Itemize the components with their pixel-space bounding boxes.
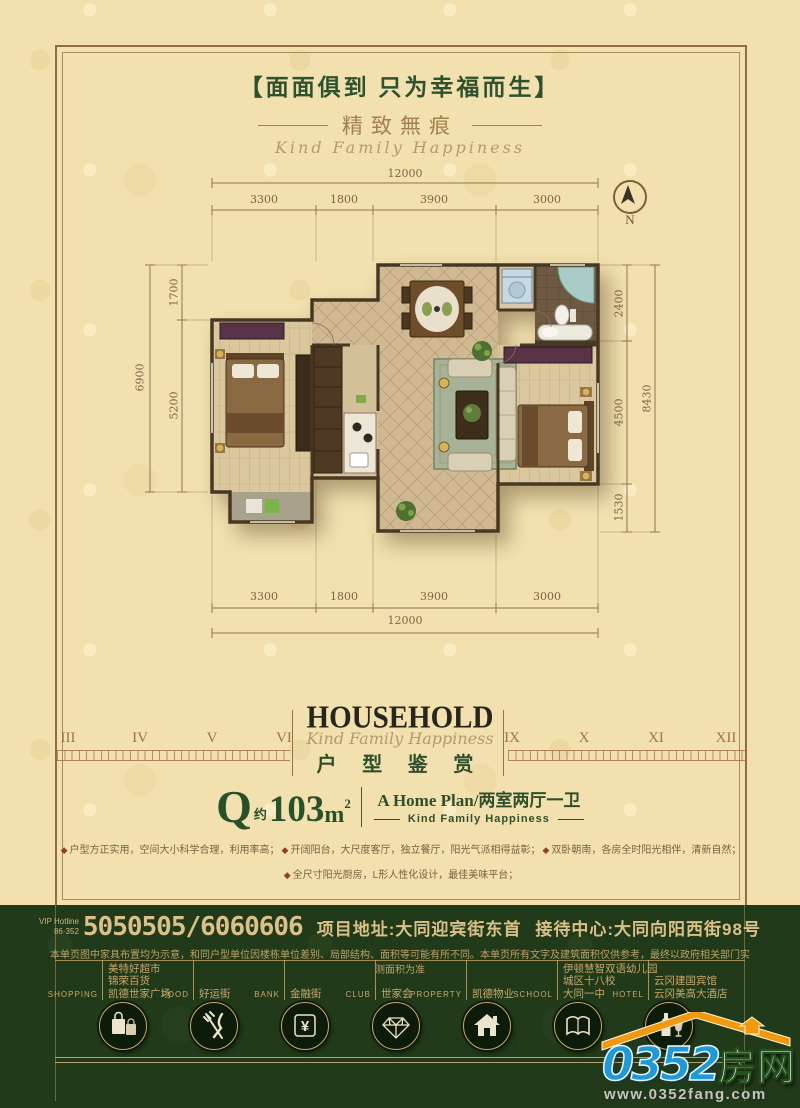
amenity-category: CLUB	[299, 990, 371, 999]
connector-line	[193, 960, 194, 1000]
wardrobe	[220, 323, 284, 339]
dim-top-total: 12000	[375, 167, 435, 180]
unit-approx: 约	[254, 804, 267, 823]
balcony-cushion-green	[265, 499, 279, 513]
site-logo: 0352房网 www.0352fang.com	[598, 1012, 800, 1108]
amenity-category: HOTEL	[572, 990, 644, 999]
ruler-numeral: XII	[711, 730, 741, 747]
logo-url: www.0352fang.com	[604, 1086, 798, 1103]
logo-suffix: 房网	[718, 1045, 796, 1089]
unit-tagline-row: Kind Family Happiness	[374, 813, 584, 825]
amenity-category: SHOPPING	[26, 990, 98, 999]
dim-bottom-seg: 1800	[314, 590, 374, 603]
entry-floor	[312, 300, 378, 345]
unit-tagline: Kind Family Happiness	[408, 813, 550, 825]
logo-brand: 0352	[602, 1037, 718, 1091]
connector-line	[102, 960, 103, 1000]
ruler-numeral: V	[197, 730, 227, 747]
dim-left-seg: 1700	[168, 263, 181, 323]
feature-list: ◆户型方正实用，空间大小科学合理，利用率高；◆开阔阳台，大尺度客厅，独立餐厅，阳…	[0, 838, 800, 888]
dim-right-seg: 2400	[613, 274, 626, 334]
connector-line	[466, 960, 467, 1000]
dim-bottom-seg: 3300	[234, 590, 294, 603]
dim-bottom-seg: 3000	[517, 590, 577, 603]
dim-bottom-total: 12000	[375, 614, 435, 627]
ruler-numeral: X	[569, 730, 599, 747]
feature-item: 开阔阳台，大尺度客厅，独立餐厅，阳光气派相得益彰；	[290, 845, 540, 856]
unit-area: 103	[269, 793, 325, 827]
unit-divider	[361, 787, 362, 827]
amenity-category: SCHOOL	[481, 990, 553, 999]
connector-line	[557, 960, 558, 1000]
reception-address: 接待中心:大同向阳西街98号	[535, 915, 761, 940]
tagline-dash	[374, 819, 400, 820]
toilet	[555, 305, 569, 325]
unit-area-sup: 2	[344, 796, 351, 811]
amenity-labels: 云冈建国宾馆 云冈美高大酒店	[654, 962, 772, 1000]
dim-top-seg: 3000	[517, 193, 577, 206]
project-address: 项目地址:大同迎宾街东首	[317, 915, 522, 940]
connector-line	[284, 960, 285, 1000]
dim-right-seg: 4500	[613, 383, 626, 443]
unit-area-unit: m2	[324, 792, 351, 827]
feature-item: 双卧朝南，各房全时阳光相伴，清新自然；	[551, 845, 741, 856]
unit-description: A Home Plan/两室两厅一卫 Kind Family Happiness	[374, 786, 584, 825]
dim-bottom-seg: 3900	[404, 590, 464, 603]
dim-left-seg: 5200	[168, 376, 181, 436]
dim-right-seg: 1530	[613, 478, 626, 538]
household-script: Kind Family Happiness	[250, 729, 550, 748]
feature-item: 全尺寸阳光厨房，L形人性化设计，最佳美味平台；	[293, 870, 519, 881]
connector-line	[375, 960, 376, 1000]
balcony-cushion	[246, 499, 262, 513]
dresser	[504, 347, 592, 363]
ruler-numeral: III	[53, 730, 83, 747]
unit-letter: Q	[216, 787, 252, 827]
bullet-icon: ◆	[284, 870, 291, 880]
dim-top-seg: 3300	[234, 193, 294, 206]
feature-line-1: ◆户型方正实用，空间大小科学合理，利用率高；◆开阔阳台，大尺度客厅，独立餐厅，阳…	[0, 838, 800, 863]
kitchen-sink	[350, 453, 368, 467]
unit-info: Q 约 103 m2 A Home Plan/两室两厅一卫 Kind Famil…	[0, 786, 800, 827]
hotline-label: VIP Hotline 86·352	[39, 917, 79, 937]
tagline-dash	[558, 819, 584, 820]
kitchen-counter	[314, 347, 342, 473]
dim-right-total: 8430	[641, 369, 654, 429]
floor-plan-graphic	[210, 263, 600, 533]
ruler-numeral: IV	[125, 730, 155, 747]
ruler-numeral: XI	[641, 730, 671, 747]
dim-top-seg: 1800	[314, 193, 374, 206]
unit-plan-type: A Home Plan/两室两厅一卫	[377, 786, 580, 811]
compass-label: N	[618, 212, 642, 228]
dim-left-total: 6900	[134, 348, 147, 408]
household-cn: 户 型 鉴 赏	[250, 748, 550, 777]
phone-number: 5050505/6060606	[83, 912, 303, 942]
amenity-category: PROPERTY	[390, 990, 462, 999]
bullet-icon: ◆	[542, 845, 549, 855]
logo-text: 0352房网	[602, 1036, 800, 1091]
feature-line-2: ◆全尺寸阳光厨房，L形人性化设计，最佳美味平台；	[0, 863, 800, 888]
tv-cabinet	[296, 355, 312, 451]
connector-line	[648, 960, 649, 1000]
compass-icon	[613, 180, 647, 214]
feature-item: 户型方正实用，空间大小科学合理，利用率高；	[70, 845, 280, 856]
hotline-row: VIP Hotline 86·352 5050505/6060606 项目地址:…	[0, 912, 800, 942]
amenity-category: FOOD	[117, 990, 189, 999]
bullet-icon: ◆	[61, 845, 68, 855]
flyer-page: 【面面俱到 只为幸福而生】 精致無痕 Kind Family Happiness…	[0, 0, 800, 1108]
dim-top-seg: 3900	[404, 193, 464, 206]
amenity-category: BANK	[208, 990, 280, 999]
bullet-icon: ◆	[282, 845, 289, 855]
